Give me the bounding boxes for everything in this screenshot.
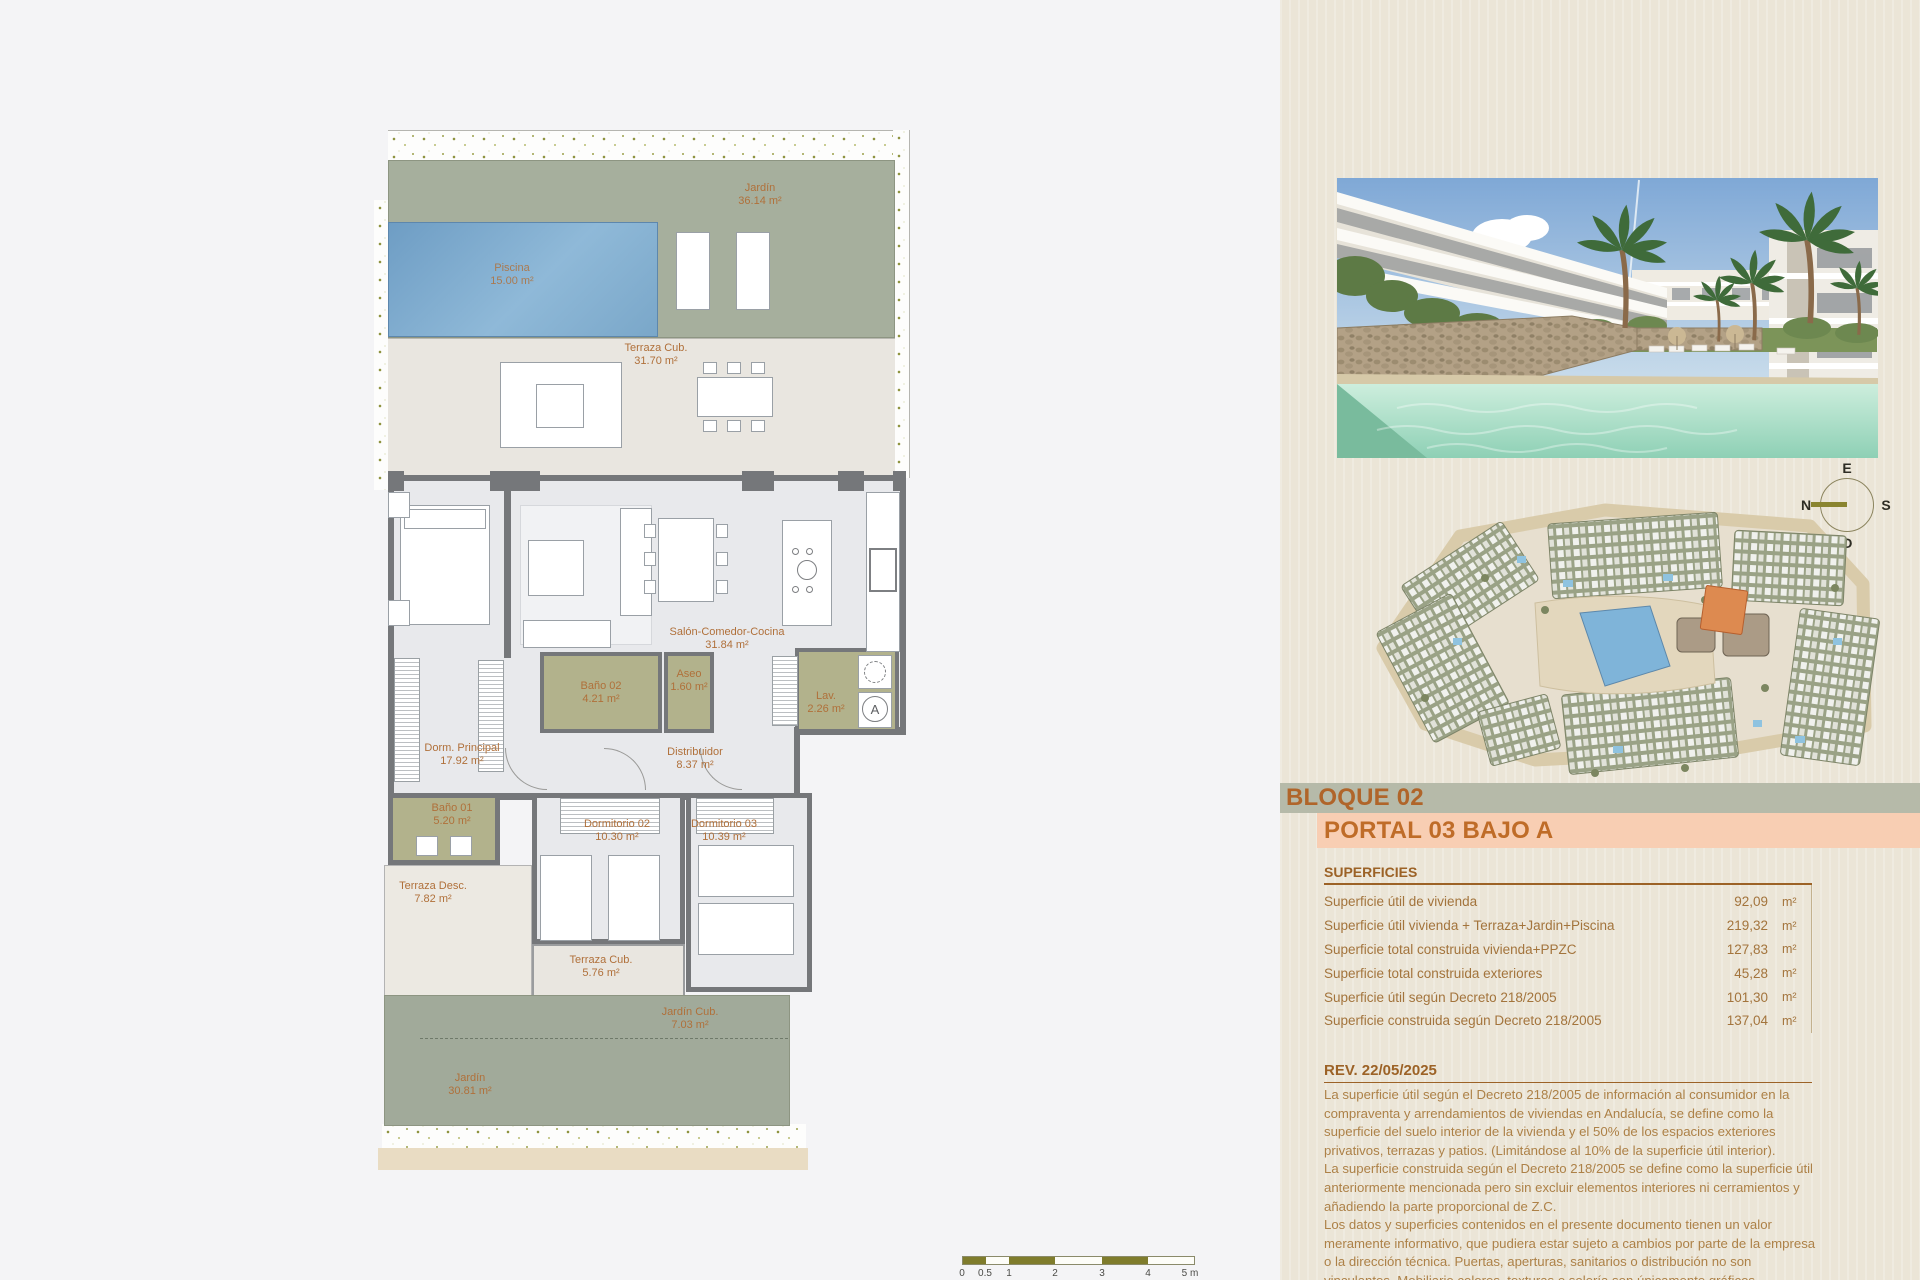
portal-band: PORTAL 03 BAJO A [1317, 813, 1920, 848]
scale-tick: 0.5 [978, 1268, 992, 1279]
chair [644, 580, 656, 594]
room-label-lav: Lav.2.26 m² [807, 690, 844, 715]
legal-text: La superficie útil según el Decreto 218/… [1324, 1086, 1821, 1280]
dining-table [658, 518, 714, 602]
dryer-drum-icon [864, 661, 886, 683]
table-row: Superficie total construida exteriores 4… [1324, 961, 1812, 985]
chair [716, 580, 728, 594]
table-row: Superficie útil vivienda + Terraza+Jardi… [1324, 914, 1812, 938]
table-row: Superficie total construida vivienda+PPZ… [1324, 938, 1812, 962]
wardrobe [772, 656, 798, 726]
garden-dashed-boundary [420, 1038, 788, 1039]
wardrobe [394, 658, 420, 782]
nightstand [388, 600, 410, 626]
legal-paragraph: Los datos y superficies contenidos en el… [1324, 1216, 1821, 1280]
plan-plant-border-bottom [382, 1124, 806, 1148]
room-label-terraza-cub-top: Terraza Cub.31.70 m² [625, 342, 688, 367]
armchair [528, 540, 584, 596]
facade-pillar [838, 471, 864, 491]
hob-icon [792, 586, 799, 593]
scale-tick: 3 [1099, 1268, 1105, 1279]
garden-covered-area [384, 995, 790, 1126]
scale-tick: 2 [1052, 1268, 1058, 1279]
site-plan [1365, 488, 1885, 783]
hob-icon [797, 560, 817, 580]
legal-paragraph: La superficie útil según el Decreto 218/… [1324, 1086, 1821, 1160]
block-band: BLOQUE 02 [1280, 783, 1920, 813]
chair [727, 420, 741, 432]
plan-plant-border-right [893, 130, 910, 478]
chair [751, 362, 765, 374]
room-label-terraza-cub-small: Terraza Cub.5.76 m² [570, 954, 633, 979]
single-bed [540, 855, 592, 941]
hob-icon [792, 548, 799, 555]
coffee-table [536, 384, 584, 428]
sink [450, 836, 472, 856]
scale-tick: 0 [959, 1268, 965, 1279]
revision-heading: REV. 22/05/2025 [1324, 1062, 1437, 1079]
portal-title: PORTAL 03 BAJO A [1324, 817, 1553, 845]
room-label-distribuidor: Distribuidor8.37 m² [667, 746, 723, 771]
table-row: Superficie útil según Decreto 218/2005 1… [1324, 985, 1812, 1009]
plan-sand-strip [378, 1148, 808, 1170]
brochure-page: A [0, 0, 1920, 1280]
room-label-dorm-principal: Dorm. Principal17.92 m² [424, 742, 499, 767]
facade-pillar [388, 471, 404, 491]
wall-dorm-salon [504, 478, 511, 658]
washer-drum-icon: A [862, 696, 888, 722]
chair [644, 524, 656, 538]
bench [523, 620, 611, 648]
superficies-rule [1324, 883, 1812, 885]
plan-plant-border-top [388, 130, 910, 162]
superficies-heading: SUPERFICIES [1324, 864, 1417, 880]
room-label-jardin-cub: Jardín Cub.7.03 m² [662, 1006, 719, 1031]
compass-e: E [1842, 460, 1851, 476]
single-bed [608, 855, 660, 941]
oven [869, 548, 897, 592]
floor-plan: A [0, 0, 960, 1280]
sun-lounger [676, 232, 710, 310]
chair [703, 420, 717, 432]
scale-bar: 0 0.5 1 2 3 4 5 m [962, 1256, 1195, 1280]
room-label-aseo: Aseo1.60 m² [670, 668, 707, 693]
chair [751, 420, 765, 432]
scale-tick: 4 [1145, 1268, 1151, 1279]
facade-pillar [742, 471, 774, 491]
table-row: Superficie útil de vivienda 92,09 m² [1324, 890, 1812, 914]
room-label-jardin-top: Jardín36.14 m² [738, 182, 781, 207]
revision-rule [1324, 1082, 1812, 1083]
room-label-bano-01: Baño 015.20 m² [432, 802, 473, 827]
sun-lounger [736, 232, 770, 310]
room-label-bano-02: Baño 024.21 m² [581, 680, 622, 705]
room-label-salon: Salón-Comedor-Cocina31.84 m² [670, 626, 785, 651]
chair [716, 552, 728, 566]
single-bed [698, 903, 794, 955]
nightstand [388, 492, 410, 518]
dining-table-terrace [697, 377, 773, 417]
hob-icon [806, 548, 813, 555]
scale-tick: 5 m [1182, 1268, 1199, 1279]
chair [716, 524, 728, 538]
pillow [404, 509, 486, 529]
superficies-table: Superficie útil de vivienda 92,09 m² Sup… [1324, 890, 1812, 1033]
chair [703, 362, 717, 374]
scale-tick: 1 [1006, 1268, 1012, 1279]
room-label-terraza-desc: Terraza Desc.7.82 m² [399, 880, 467, 905]
washer-label: A [871, 702, 880, 717]
room-label-piscina: Piscina15.00 m² [490, 262, 533, 287]
legal-paragraph: La superficie construida según el Decret… [1324, 1160, 1821, 1216]
facade-pillar [490, 471, 540, 491]
chair [727, 362, 741, 374]
single-bed [698, 845, 794, 897]
block-title: BLOQUE 02 [1286, 784, 1424, 812]
hob-icon [806, 586, 813, 593]
facade-pillar [893, 471, 906, 491]
project-photo [1337, 178, 1878, 458]
room-label-dormitorio-02: Dormitorio 0210.30 m² [584, 818, 650, 843]
table-row: Superficie construida según Decreto 218/… [1324, 1009, 1812, 1033]
room-label-dormitorio-03: Dormitorio 0310.39 m² [691, 818, 757, 843]
highlighted-unit [1700, 585, 1748, 634]
sink [416, 836, 438, 856]
room-label-jardin-bottom: Jardín30.81 m² [448, 1072, 491, 1097]
chair [644, 552, 656, 566]
plan-plant-border-left [374, 200, 388, 490]
